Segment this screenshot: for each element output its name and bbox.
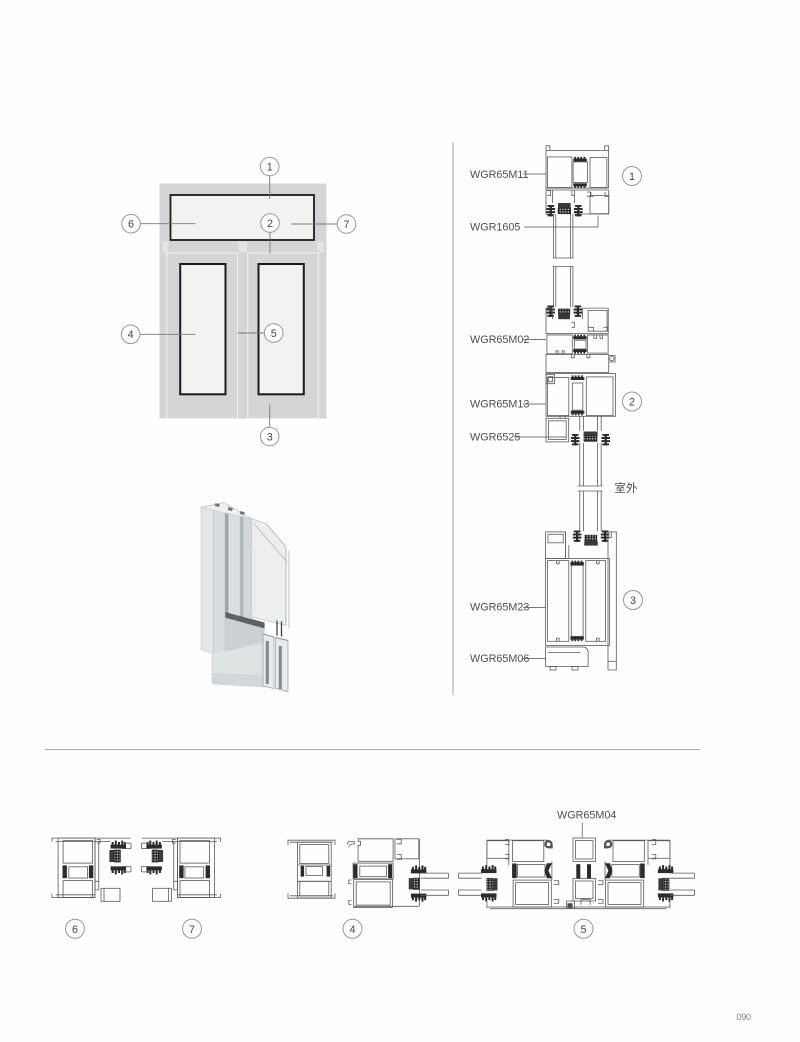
svg-text:6: 6 [72,924,78,936]
svg-text:4: 4 [349,924,355,936]
svg-text:6: 6 [128,219,134,231]
svg-text:3: 3 [630,595,636,607]
svg-text:2: 2 [267,218,273,230]
svg-text:7: 7 [343,219,349,231]
svg-text:WGR65M02: WGR65M02 [470,334,529,346]
svg-text:WGR65M13: WGR65M13 [470,399,529,411]
svg-text:室外: 室外 [615,481,638,495]
svg-text:WGR65M06: WGR65M06 [470,653,529,665]
svg-text:4: 4 [128,329,134,341]
svg-text:WGR65M23: WGR65M23 [470,602,529,614]
svg-text:1: 1 [267,161,273,173]
svg-text:1: 1 [629,171,635,183]
svg-text:WGR6525: WGR6525 [470,432,520,444]
svg-text:WGR65M04: WGR65M04 [557,810,616,822]
svg-text:WGR65M11: WGR65M11 [470,169,529,181]
svg-text:2: 2 [629,397,635,409]
svg-text:5: 5 [580,924,586,936]
svg-text:WGR1605: WGR1605 [470,222,520,234]
svg-text:090: 090 [737,1012,752,1022]
svg-text:5: 5 [271,328,277,340]
svg-text:3: 3 [267,431,273,443]
svg-text:7: 7 [189,924,195,936]
